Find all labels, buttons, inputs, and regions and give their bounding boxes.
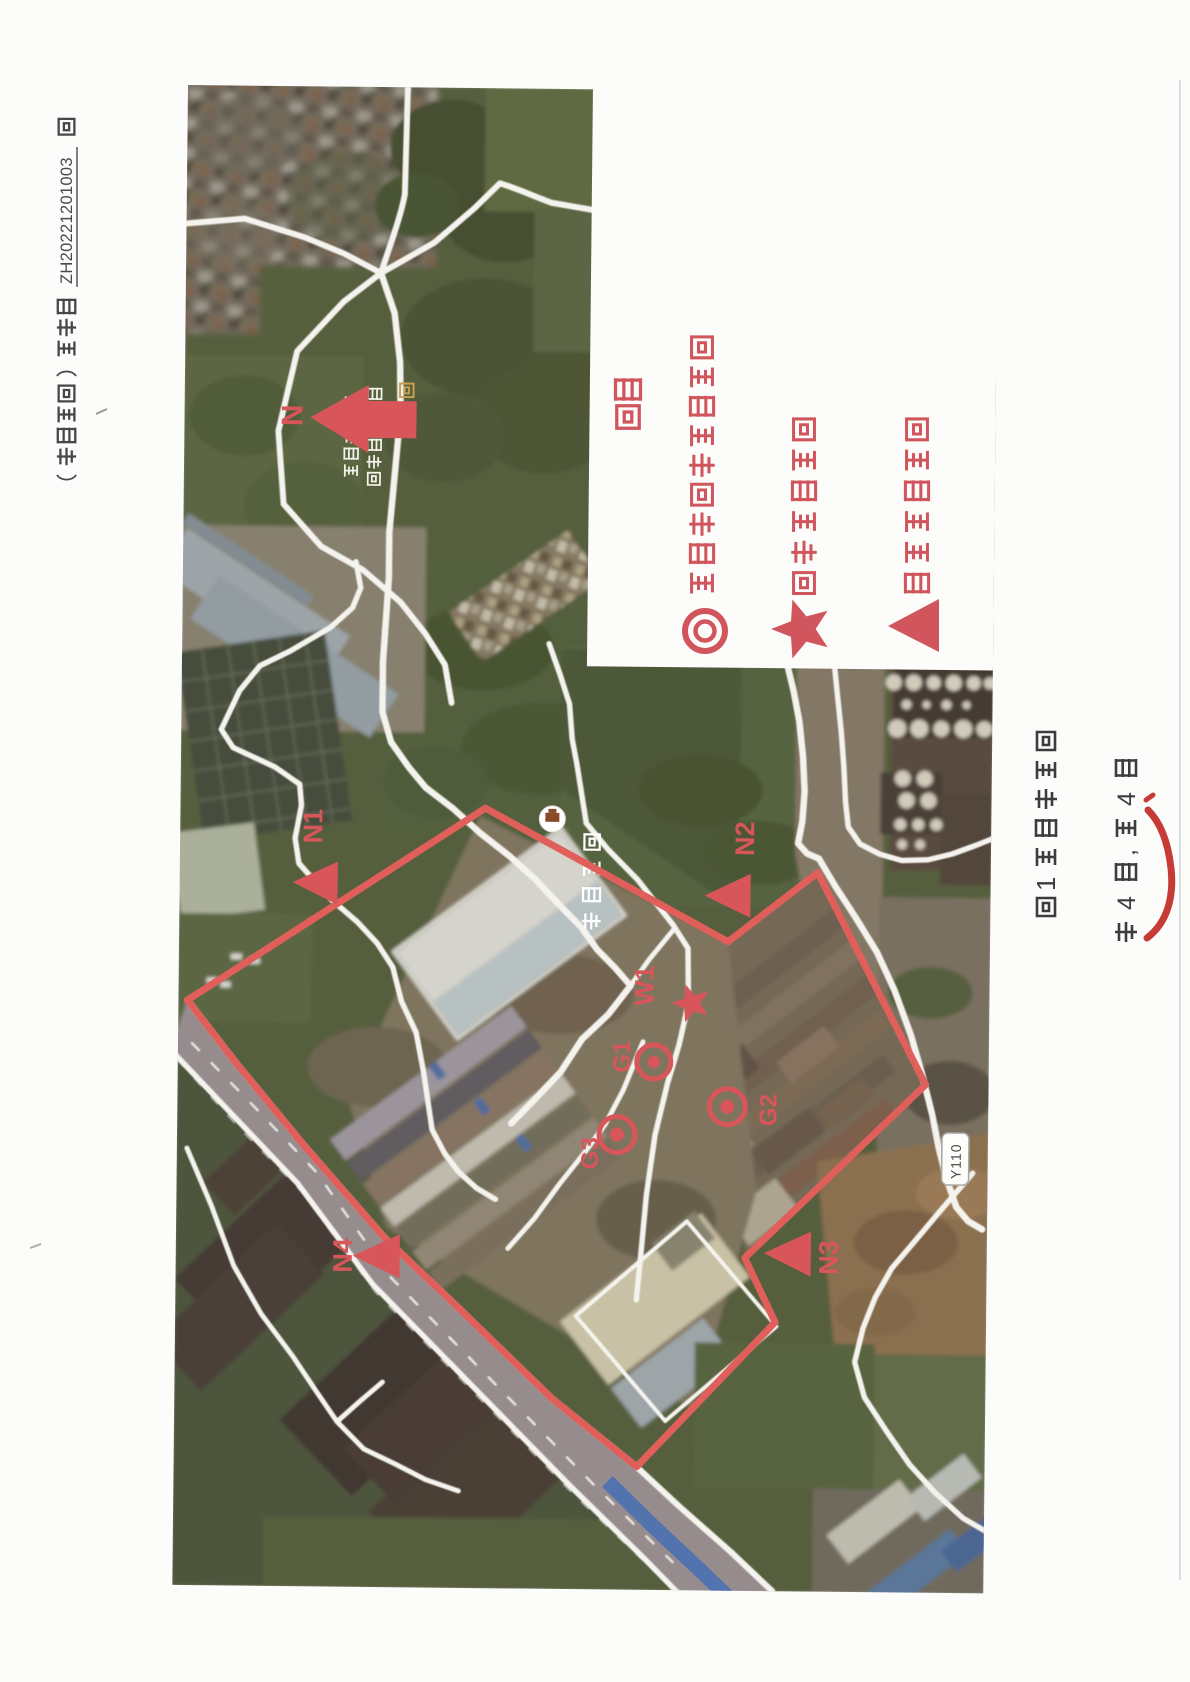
svg-text:W1: W1 — [629, 965, 659, 1006]
svg-text:N4: N4 — [328, 1238, 358, 1273]
svg-text:Y110: Y110 — [948, 1143, 964, 1179]
svg-text:4: 4 — [1113, 896, 1141, 910]
svg-text:N2: N2 — [730, 821, 760, 856]
svg-text:G3: G3 — [577, 1137, 604, 1169]
svg-text:N: N — [276, 404, 309, 426]
svg-text:1: 1 — [1031, 877, 1061, 891]
svg-text:N3: N3 — [814, 1240, 844, 1275]
svg-text:G1: G1 — [609, 1040, 636, 1072]
svg-text:,: , — [1113, 849, 1141, 856]
svg-text:N1: N1 — [298, 809, 328, 844]
svg-text:ZH20221201003: ZH20221201003 — [58, 157, 76, 284]
svg-text:G2: G2 — [755, 1094, 782, 1126]
svg-text:4: 4 — [1113, 792, 1141, 806]
